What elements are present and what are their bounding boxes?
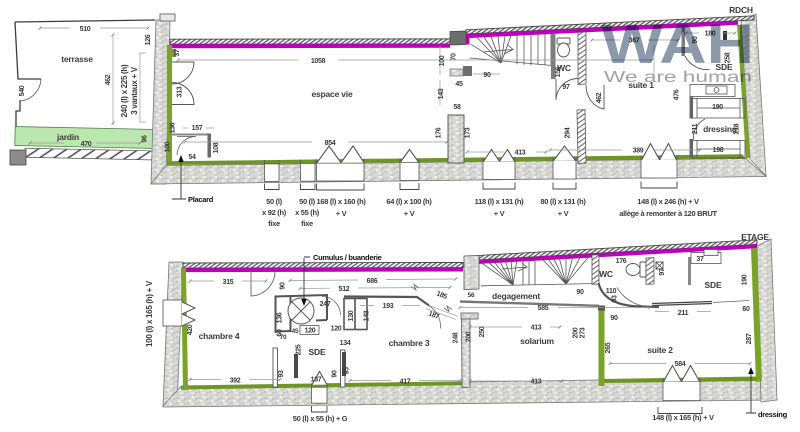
svg-text:96: 96 (142, 135, 149, 143)
svg-text:118 (l) x 131 (h): 118 (l) x 131 (h) (475, 197, 524, 206)
svg-text:136: 136 (170, 122, 177, 133)
svg-text:56: 56 (468, 292, 475, 299)
svg-text:90: 90 (483, 72, 491, 79)
svg-text:+ V: + V (336, 209, 347, 218)
svg-text:211: 211 (692, 123, 699, 134)
svg-text:97: 97 (659, 268, 666, 276)
svg-text:97: 97 (562, 84, 570, 91)
svg-text:fixe: fixe (301, 219, 313, 228)
svg-text:250: 250 (479, 326, 486, 337)
svg-text:265: 265 (605, 342, 612, 353)
svg-text:143: 143 (438, 88, 445, 99)
svg-text:273: 273 (580, 327, 587, 338)
svg-text:chambre 3: chambre 3 (389, 338, 430, 348)
svg-text:176: 176 (436, 127, 443, 138)
svg-text:45: 45 (292, 328, 299, 335)
svg-text:392: 392 (230, 378, 241, 385)
svg-text:540: 540 (19, 85, 26, 96)
svg-text:190: 190 (712, 104, 723, 111)
svg-text:130: 130 (348, 310, 355, 321)
svg-text:93: 93 (612, 295, 619, 303)
svg-text:247: 247 (320, 301, 331, 308)
svg-text:degagement: degagement (492, 291, 540, 301)
svg-text:420: 420 (187, 324, 194, 335)
svg-text:240 (l) x 225 (h): 240 (l) x 225 (h) (120, 64, 129, 117)
svg-text:WC: WC (599, 269, 613, 279)
svg-text:70: 70 (280, 334, 287, 341)
svg-text:108: 108 (213, 142, 220, 153)
svg-text:584: 584 (675, 361, 686, 368)
svg-text:chambre 4: chambre 4 (199, 331, 240, 341)
svg-text:suite 2: suite 2 (647, 345, 673, 355)
svg-text:50 (l): 50 (l) (266, 197, 283, 206)
svg-text:58: 58 (453, 104, 461, 111)
svg-text:93: 93 (278, 370, 285, 378)
svg-text:+ V: + V (494, 209, 505, 218)
svg-text:90: 90 (576, 289, 584, 296)
svg-text:ETAGE: ETAGE (741, 232, 769, 242)
svg-text:dressing: dressing (758, 410, 788, 419)
svg-text:WC: WC (557, 63, 571, 73)
svg-text:SDE: SDE (309, 347, 326, 357)
svg-text:462: 462 (105, 74, 112, 85)
svg-text:WAH: WAH (601, 12, 754, 75)
svg-text:54: 54 (188, 154, 196, 161)
svg-text:168 (l) x 160 (h): 168 (l) x 160 (h) (316, 197, 366, 206)
svg-text:225: 225 (296, 344, 303, 355)
svg-text:100: 100 (439, 55, 446, 66)
svg-text:120: 120 (331, 326, 342, 333)
svg-text:We are human: We are human (604, 69, 752, 86)
svg-text:70: 70 (451, 53, 458, 61)
svg-text:80 (l) x 131 (h): 80 (l) x 131 (h) (540, 197, 586, 206)
svg-text:585: 585 (538, 305, 549, 312)
svg-text:terrasse: terrasse (61, 54, 93, 64)
svg-text:198: 198 (713, 147, 724, 154)
svg-text:854: 854 (325, 140, 336, 147)
svg-text:95: 95 (344, 367, 351, 375)
svg-text:176: 176 (616, 258, 627, 265)
svg-text:157: 157 (192, 125, 203, 132)
svg-text:313: 313 (177, 86, 184, 97)
svg-text:413: 413 (531, 325, 542, 332)
svg-text:417: 417 (400, 379, 411, 386)
svg-text:SDE: SDE (705, 280, 722, 290)
svg-text:allège à remonter à 120 BRUT: allège à remonter à 120 BRUT (619, 209, 717, 218)
svg-text:1058: 1058 (311, 58, 326, 65)
svg-text:476: 476 (674, 89, 681, 100)
svg-text:148 (l) x 165 (h) + V: 148 (l) x 165 (h) + V (652, 413, 714, 422)
svg-text:90: 90 (610, 315, 618, 322)
svg-text:510: 510 (80, 26, 91, 33)
svg-text:143: 143 (364, 310, 371, 321)
svg-text:espace vie: espace vie (311, 89, 352, 99)
svg-text:187: 187 (311, 377, 322, 384)
svg-text:134: 134 (340, 340, 351, 347)
svg-text:50 (l): 50 (l) (299, 197, 316, 206)
svg-text:x 92 (h): x 92 (h) (262, 208, 287, 217)
svg-text:jardin: jardin (56, 132, 79, 142)
svg-text:64 (l) x 100 (h): 64 (l) x 100 (h) (386, 197, 432, 206)
svg-text:90: 90 (332, 370, 339, 378)
svg-text:413: 413 (531, 379, 542, 386)
svg-text:294: 294 (565, 127, 572, 138)
svg-text:193: 193 (383, 303, 394, 310)
svg-text:Cumulus / buanderie: Cumulus / buanderie (313, 253, 382, 262)
svg-text:413: 413 (515, 150, 526, 157)
svg-text:248: 248 (453, 332, 460, 343)
svg-text:100: 100 (165, 141, 172, 152)
svg-text:462: 462 (596, 92, 603, 103)
svg-text:fixe: fixe (268, 219, 280, 228)
svg-text:50 (l) x 55 (h) + G: 50 (l) x 55 (h) + G (293, 414, 348, 423)
svg-text:37: 37 (696, 256, 704, 263)
svg-text:200: 200 (573, 327, 580, 338)
svg-text:136: 136 (277, 312, 284, 323)
svg-text:120: 120 (305, 328, 316, 335)
svg-text:60: 60 (742, 306, 750, 313)
svg-text:dressing: dressing (703, 124, 737, 134)
svg-text:37: 37 (174, 49, 181, 57)
svg-text:110: 110 (606, 288, 617, 295)
svg-text:470: 470 (81, 141, 92, 148)
svg-text:Placard: Placard (188, 195, 214, 204)
svg-text:190: 190 (742, 274, 749, 285)
svg-text:45: 45 (455, 81, 463, 88)
svg-text:200: 200 (466, 331, 473, 342)
svg-text:315: 315 (223, 279, 234, 286)
svg-text:126: 126 (145, 34, 152, 45)
svg-text:686: 686 (367, 278, 378, 285)
svg-text:3 vantaux + V: 3 vantaux + V (130, 66, 139, 114)
svg-text:389: 389 (633, 148, 644, 155)
svg-text:148 (l) x 246 (h) + V: 148 (l) x 246 (h) + V (637, 197, 699, 206)
svg-text:512: 512 (339, 286, 350, 293)
svg-text:287: 287 (746, 333, 753, 344)
svg-text:+ V: + V (404, 209, 415, 218)
svg-text:173: 173 (465, 127, 472, 138)
svg-text:211: 211 (678, 310, 689, 317)
svg-text:90: 90 (280, 282, 287, 290)
svg-text:100 (l) x 165 (h) + V: 100 (l) x 165 (h) + V (145, 280, 154, 347)
svg-text:solarium: solarium (520, 336, 554, 346)
svg-text:x 55 (h): x 55 (h) (295, 208, 320, 217)
svg-text:+ V: + V (558, 209, 569, 218)
